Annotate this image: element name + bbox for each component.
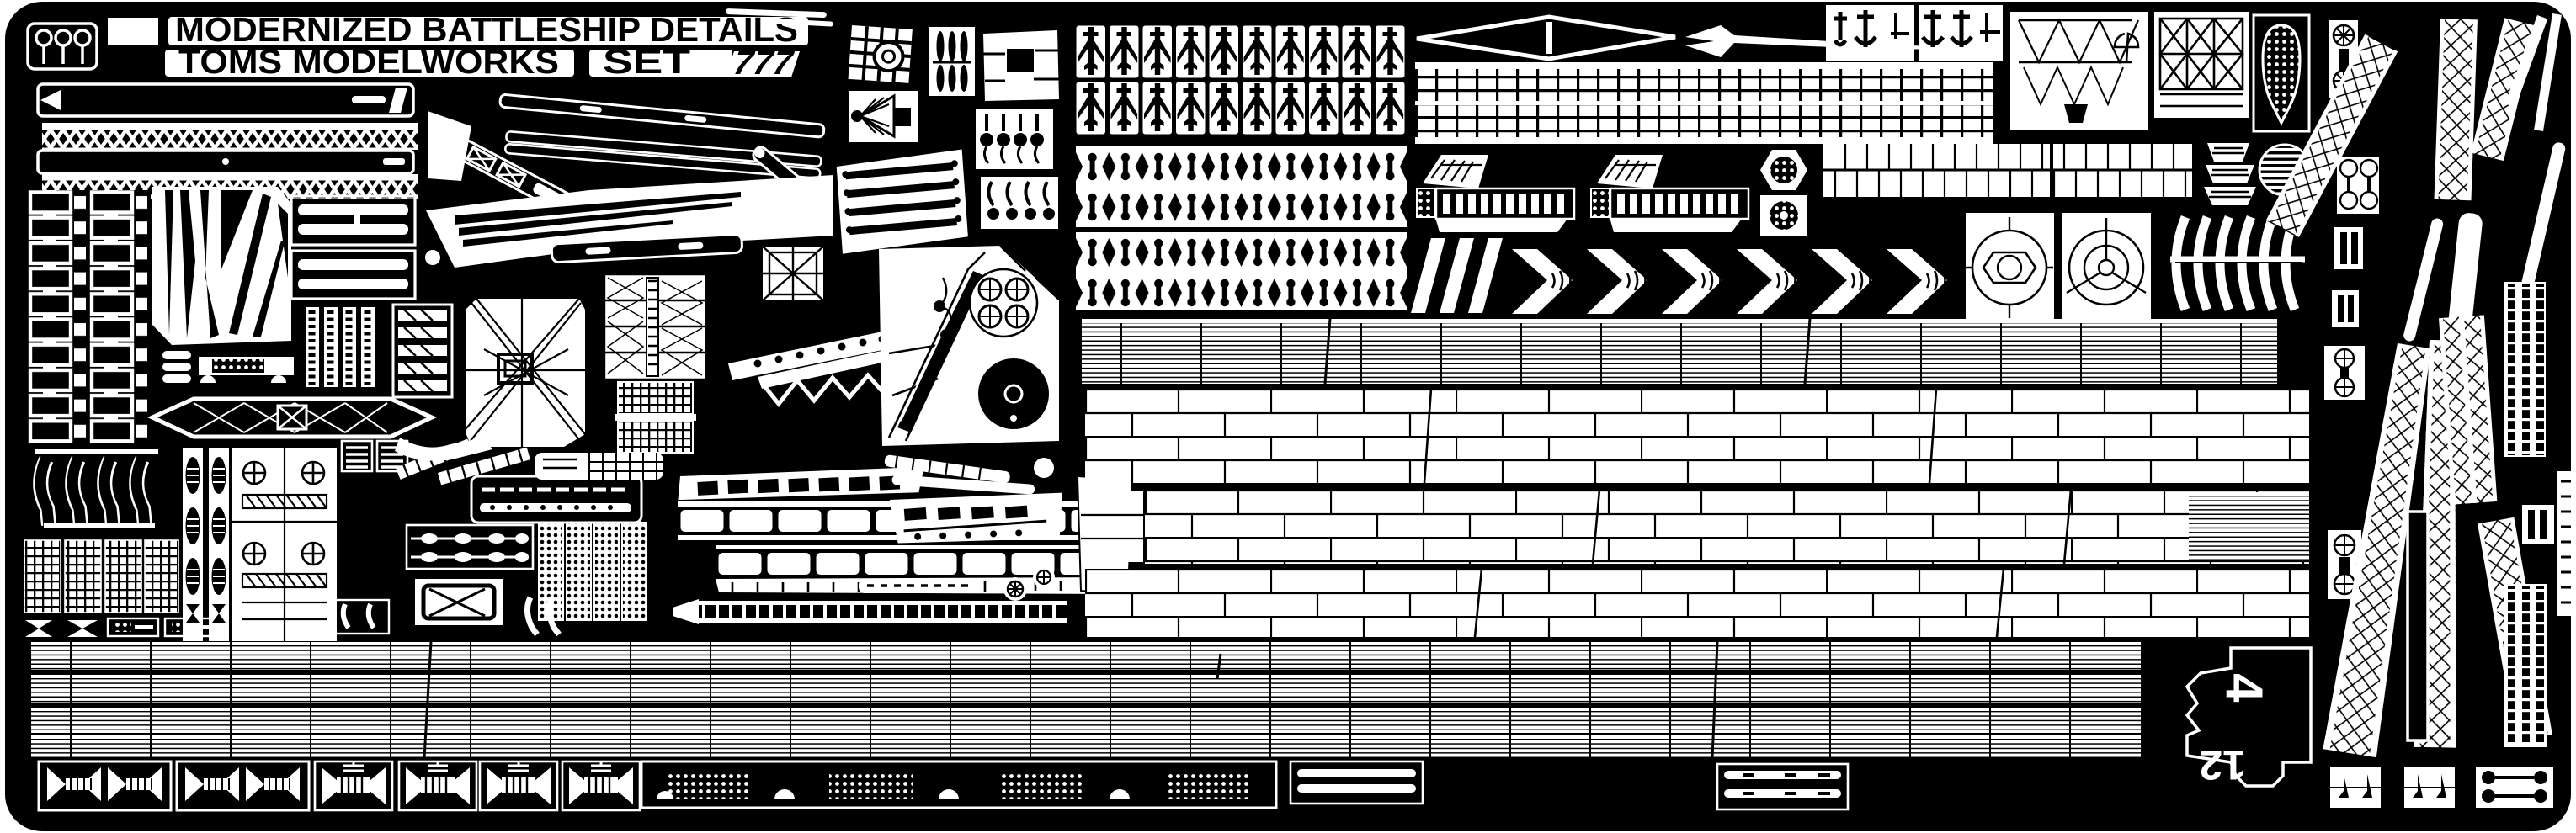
svg-text:4: 4 [2215, 673, 2273, 703]
svg-text:12: 12 [2199, 741, 2246, 788]
svg-text:TOMS MODELWORKS: TOMS MODELWORKS [178, 42, 559, 81]
svg-text:SET: SET [603, 42, 690, 81]
svg-text:777: 777 [727, 44, 799, 82]
